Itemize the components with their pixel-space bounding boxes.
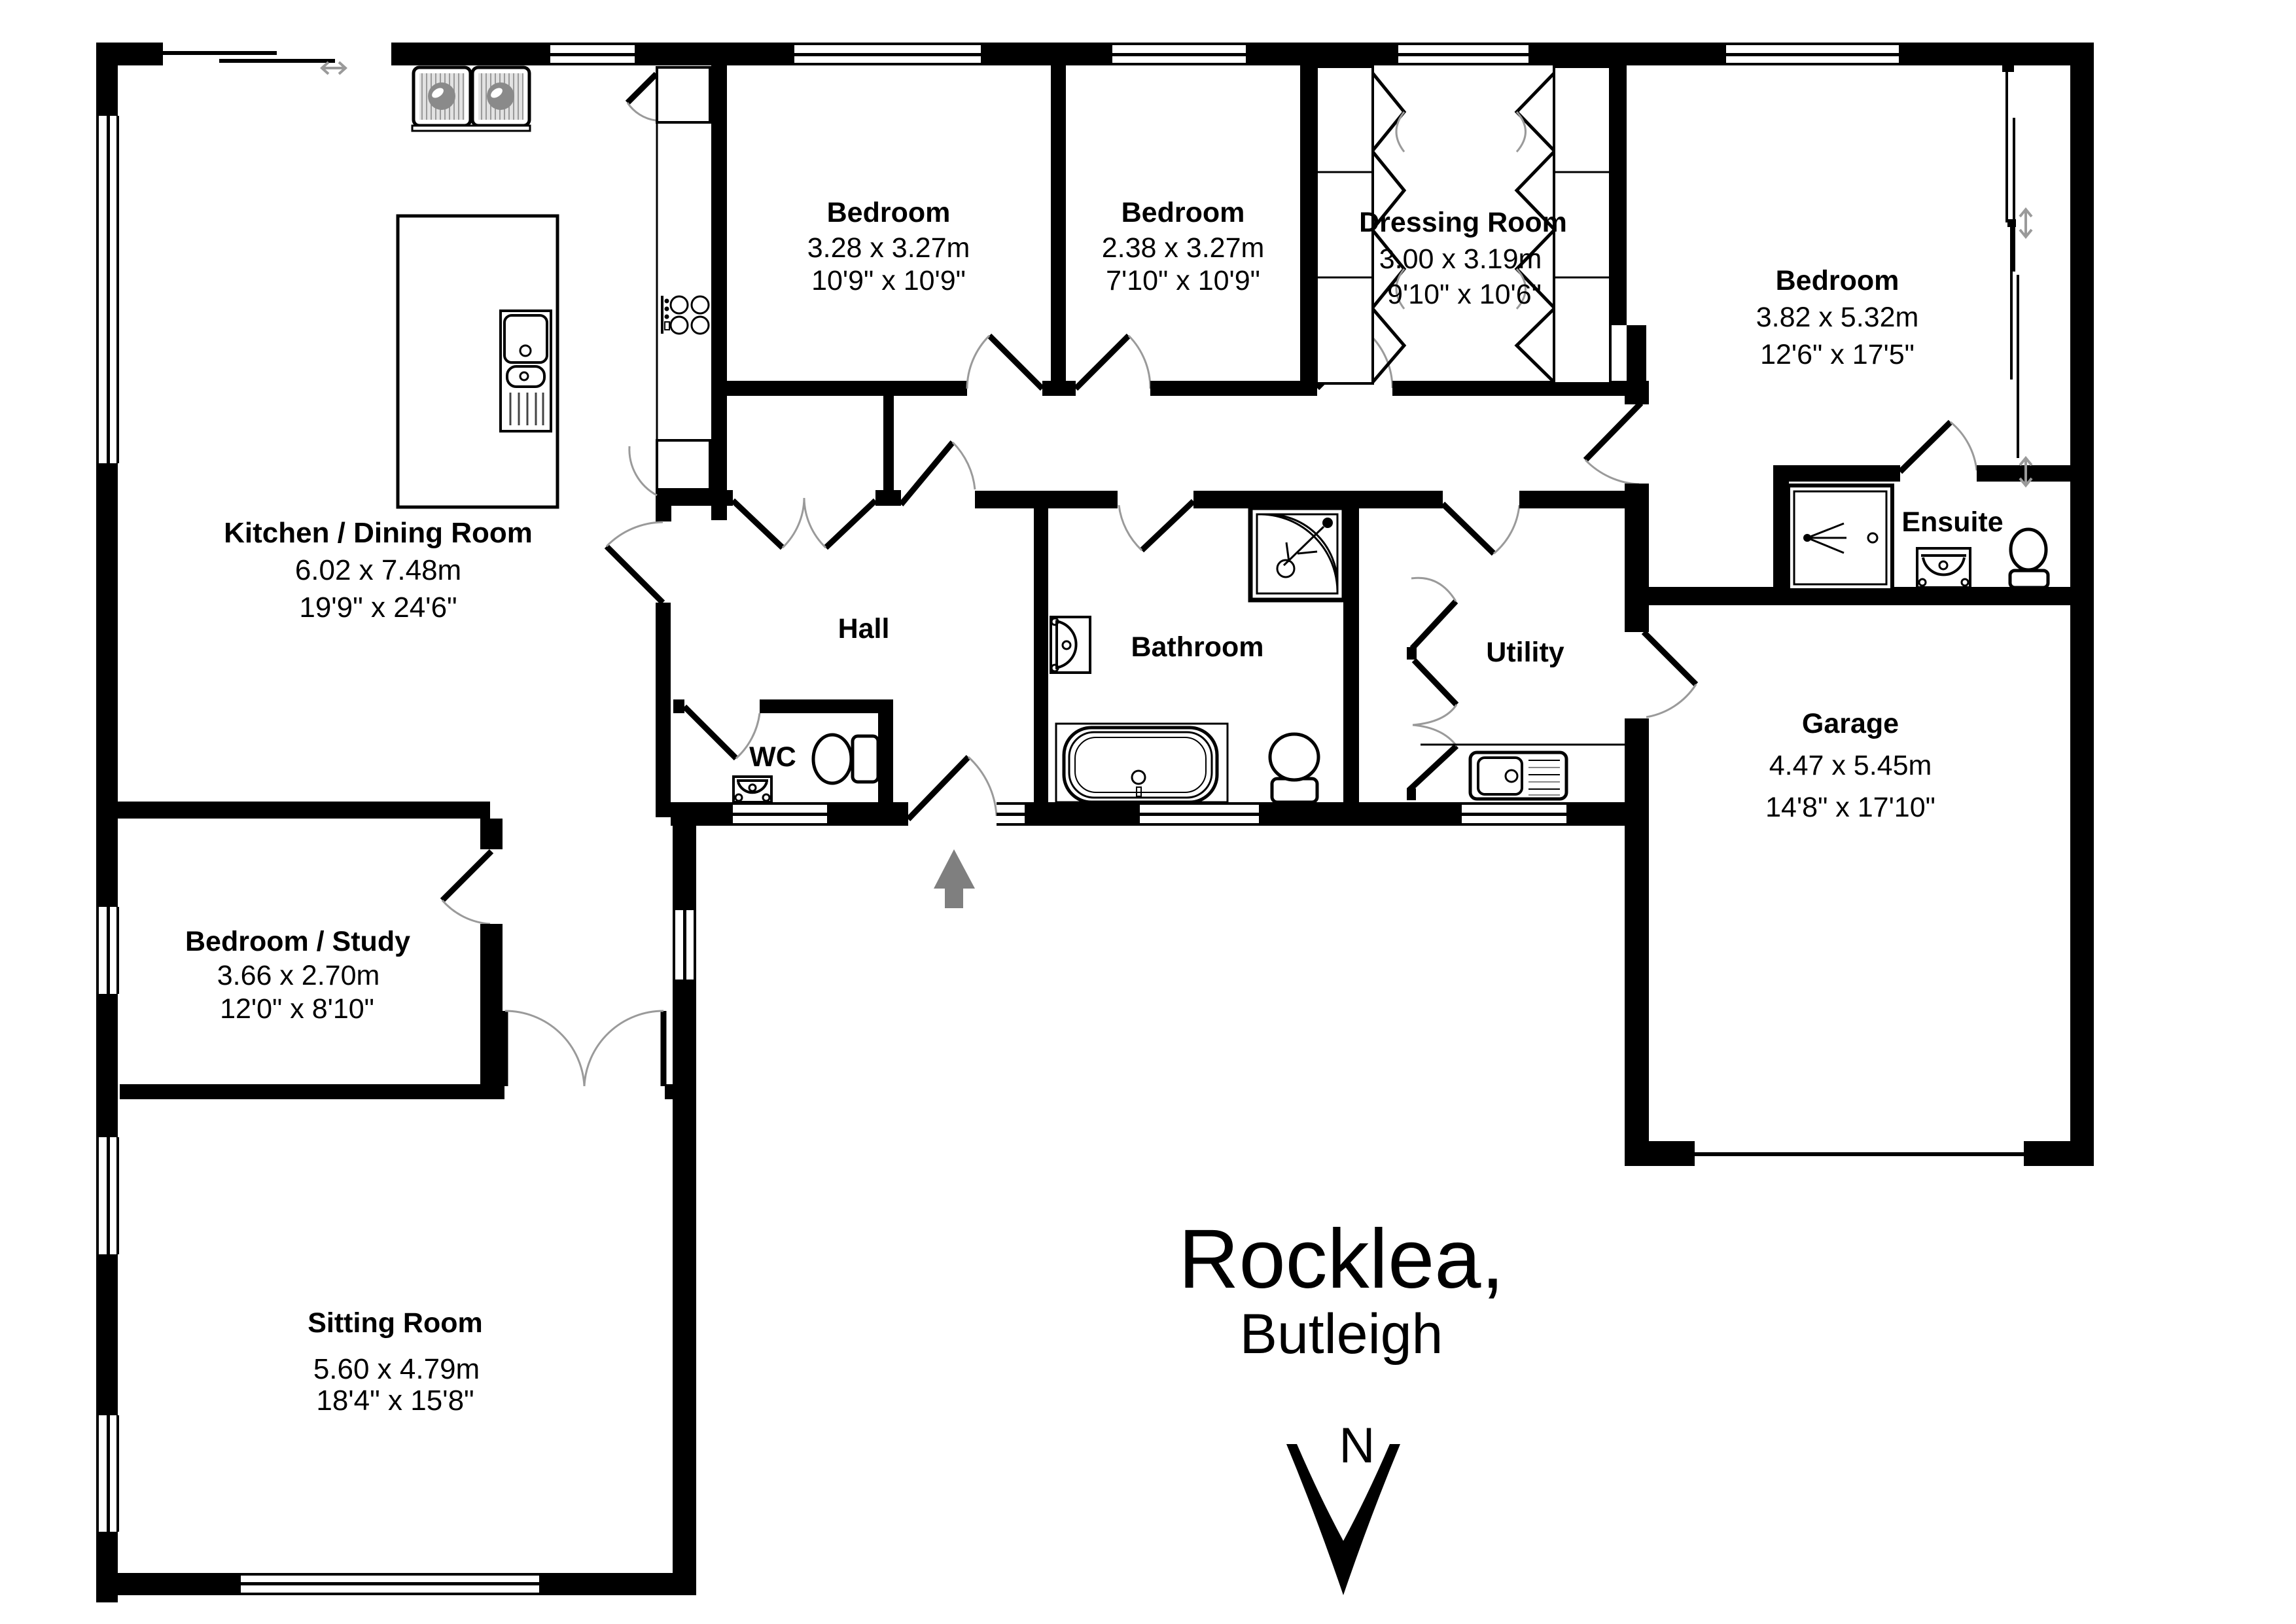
svg-text:WC: WC bbox=[749, 741, 796, 773]
svg-text:Butleigh: Butleigh bbox=[1240, 1303, 1443, 1366]
svg-text:Bedroom: Bedroom bbox=[1122, 197, 1245, 228]
svg-text:4.47 x 5.45m: 4.47 x 5.45m bbox=[1769, 750, 1932, 781]
svg-text:Bedroom: Bedroom bbox=[1776, 265, 1899, 296]
svg-text:Garage: Garage bbox=[1802, 708, 1899, 739]
svg-text:7'10" x 10'9": 7'10" x 10'9" bbox=[1106, 265, 1260, 296]
svg-text:2.38 x 3.27m: 2.38 x 3.27m bbox=[1102, 232, 1265, 264]
svg-text:12'6" x 17'5": 12'6" x 17'5" bbox=[1760, 339, 1915, 370]
svg-text:12'0" x 8'10": 12'0" x 8'10" bbox=[220, 993, 374, 1025]
svg-text:3.28 x 3.27m: 3.28 x 3.27m bbox=[807, 232, 970, 264]
svg-text:Rocklea,: Rocklea, bbox=[1178, 1212, 1504, 1306]
svg-text:18'4" x 15'8": 18'4" x 15'8" bbox=[316, 1385, 474, 1417]
svg-text:Bedroom / Study: Bedroom / Study bbox=[185, 926, 410, 957]
svg-text:N: N bbox=[1339, 1418, 1375, 1474]
svg-text:3.00 x 3.19m: 3.00 x 3.19m bbox=[1379, 243, 1542, 275]
svg-text:19'9" x 24'6": 19'9" x 24'6" bbox=[299, 591, 457, 624]
svg-text:10'9" x 10'9": 10'9" x 10'9" bbox=[811, 265, 966, 296]
svg-text:6.02 x 7.48m: 6.02 x 7.48m bbox=[295, 554, 461, 586]
svg-text:9'10" x 10'6": 9'10" x 10'6" bbox=[1387, 279, 1542, 310]
svg-text:3.82 x 5.32m: 3.82 x 5.32m bbox=[1756, 302, 1919, 333]
svg-text:14'8" x 17'10": 14'8" x 17'10" bbox=[1765, 792, 1935, 823]
svg-text:Dressing Room: Dressing Room bbox=[1359, 207, 1567, 238]
svg-text:Sitting Room: Sitting Room bbox=[308, 1307, 483, 1339]
svg-text:Ensuite: Ensuite bbox=[1901, 506, 2003, 538]
svg-text:5.60 x 4.79m: 5.60 x 4.79m bbox=[313, 1353, 480, 1385]
svg-text:Utility: Utility bbox=[1486, 637, 1564, 668]
svg-text:Hall: Hall bbox=[838, 613, 890, 644]
svg-text:Bedroom: Bedroom bbox=[827, 197, 951, 228]
svg-text:Bathroom: Bathroom bbox=[1131, 631, 1263, 663]
svg-text:Kitchen / Dining Room: Kitchen / Dining Room bbox=[224, 517, 533, 549]
svg-text:3.66 x 2.70m: 3.66 x 2.70m bbox=[217, 960, 380, 991]
